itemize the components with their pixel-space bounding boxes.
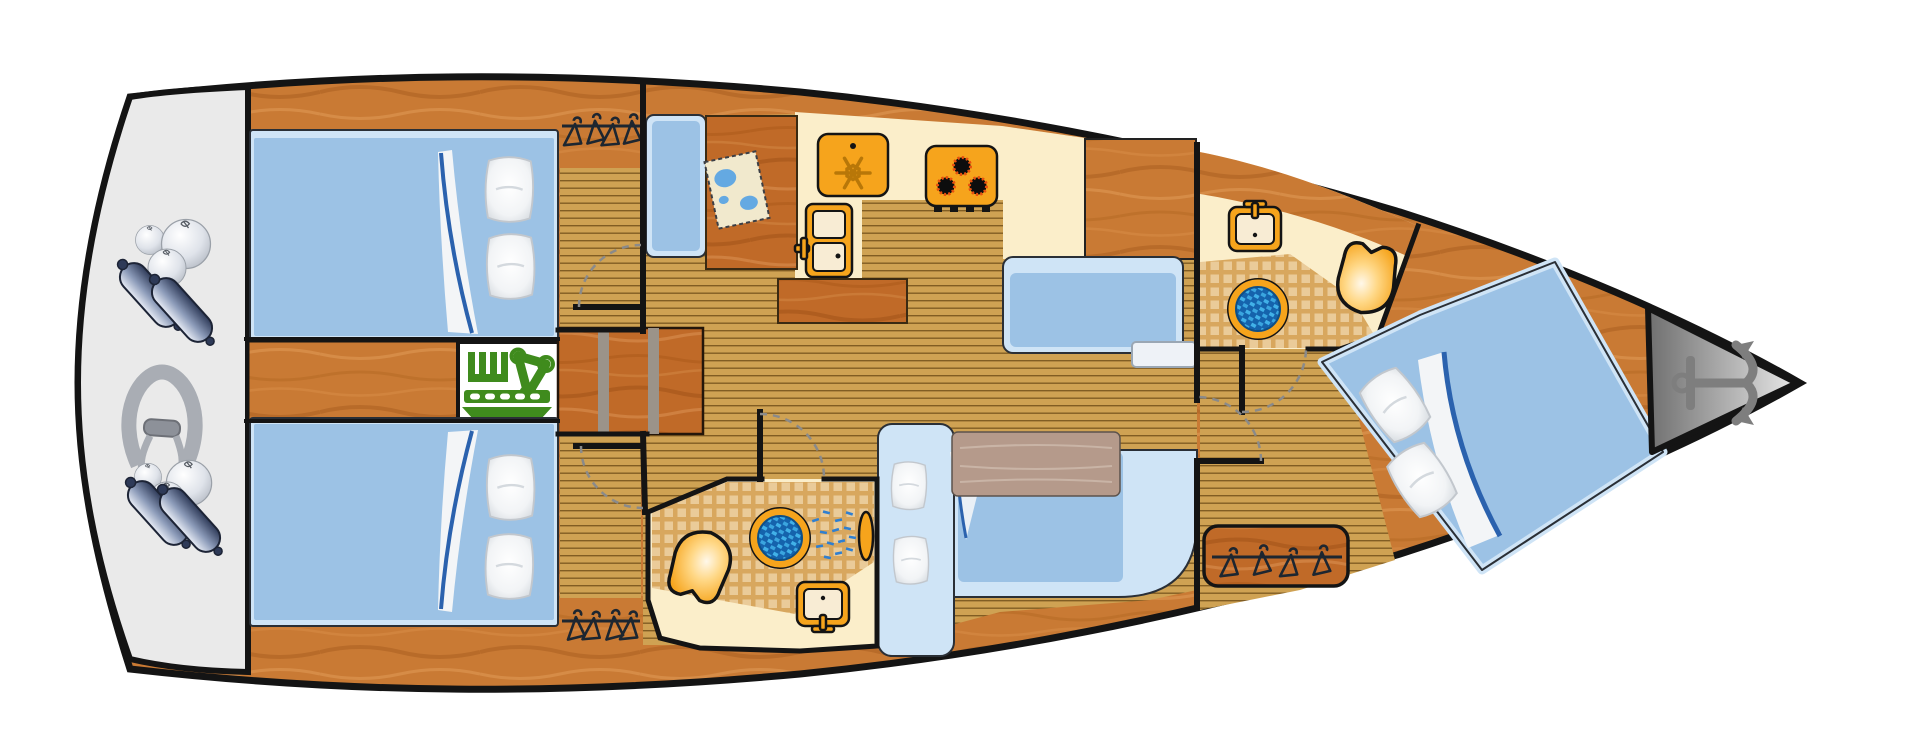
salon-table	[952, 432, 1120, 496]
stair-riser	[648, 328, 659, 434]
aft-head	[648, 479, 877, 651]
pillow	[485, 534, 534, 599]
galley-cabinet	[1085, 139, 1196, 259]
navigator-seat-cushion	[652, 121, 700, 251]
aft-cabin-port	[250, 130, 558, 340]
settee-top-cushion	[1010, 273, 1176, 347]
aft-cabin-starboard-entry-floor	[560, 434, 641, 598]
burner-icon	[938, 178, 955, 195]
stairs-block	[558, 328, 703, 434]
pillow	[893, 536, 930, 585]
floorplan-svg	[0, 0, 1920, 756]
burner-icon	[970, 178, 987, 195]
pillow	[486, 455, 535, 520]
sink-icon	[1229, 201, 1281, 251]
pillow	[486, 234, 535, 299]
forward-head	[1200, 152, 1418, 349]
shower-drain-icon	[750, 508, 810, 568]
pillow	[891, 461, 928, 510]
stair-riser	[598, 328, 609, 434]
freezer-icon	[818, 134, 888, 196]
burner-icon	[954, 158, 971, 175]
bow-locker	[1648, 308, 1797, 452]
pillow	[485, 157, 534, 222]
sink-icon	[797, 582, 849, 632]
stove-icon	[926, 146, 997, 212]
shower-drain-icon	[1228, 279, 1288, 339]
nav-station	[646, 115, 797, 269]
companionway-stairs	[558, 328, 703, 434]
aft-cabin-starboard	[250, 418, 558, 626]
yacht-floorplan	[0, 0, 1920, 756]
wardrobe-forward	[1204, 526, 1348, 586]
salon-step	[1132, 342, 1196, 367]
island-counter	[778, 279, 907, 323]
